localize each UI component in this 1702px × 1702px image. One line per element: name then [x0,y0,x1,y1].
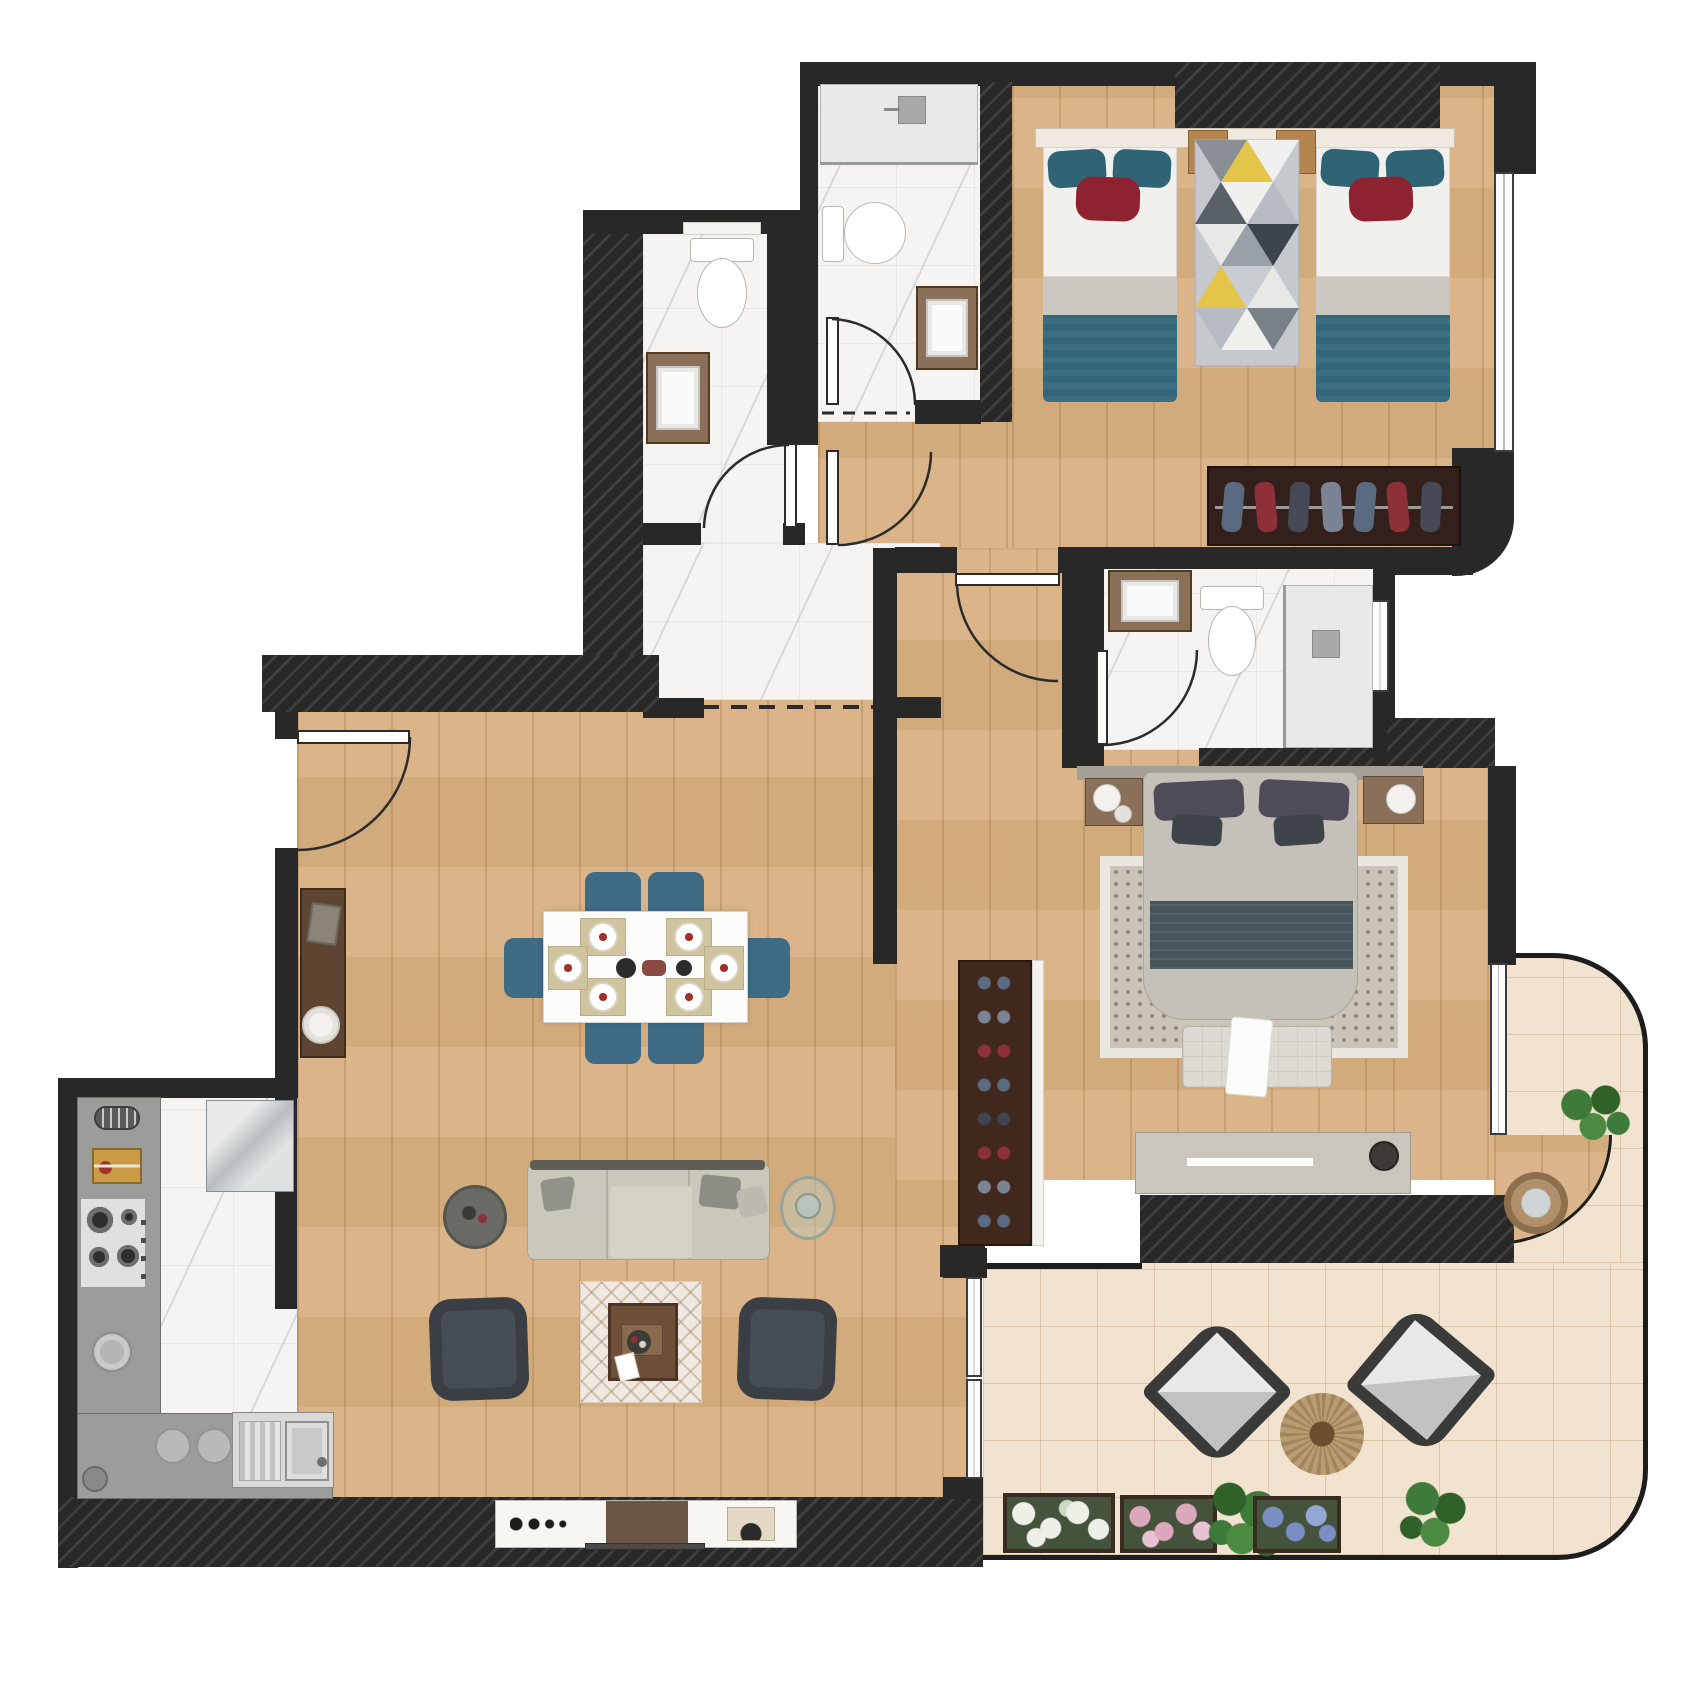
wall-guestbath-right [767,210,818,445]
wall-living-top [262,655,659,712]
glass-table-center [795,1193,821,1219]
hanging-garment [1221,481,1245,533]
master-dresser [1135,1132,1411,1194]
dining-chair-right [744,938,790,998]
wall-slidingdoor-bottom-stub [943,1477,983,1499]
headboard-cube-right [1276,130,1316,174]
decor-bar [1186,1157,1314,1167]
refrigerator [206,1100,294,1192]
wall-ensuite-bottom [1199,748,1389,768]
wall-top-right-block [1494,62,1536,174]
round-floor-plate [302,1006,340,1044]
cushion-small [1273,813,1325,846]
twin-bed-right [1316,137,1450,402]
bed-blanket-teal [1043,315,1177,402]
burner [89,1247,109,1267]
place-setting [548,946,588,990]
hanging-garment [1353,481,1377,533]
burner [121,1209,137,1225]
flower-box-white [1003,1493,1115,1553]
utensil-holder [94,1106,140,1130]
shoe-pair [972,976,1016,990]
flower-box-blue [1253,1496,1341,1553]
tv-console [495,1500,797,1548]
shower-glass-family [820,162,978,165]
decor-disc [1369,1141,1399,1171]
prep-bowl [92,1332,132,1372]
door-main-entry [297,730,410,744]
wall-guestbath-bottom [643,523,701,545]
bench-throw [1225,1016,1274,1097]
door-ensuite [1096,650,1108,745]
wall-entry-above-door [275,712,298,739]
kitchen-plate [196,1428,232,1464]
shoe-pair [972,1078,1016,1092]
sliding-door-panel-lower [966,1379,982,1479]
flower-box-pink [1120,1495,1217,1553]
tv-console-center [606,1501,688,1549]
door-master-bedroom [955,573,1060,586]
cushion-red [1348,176,1413,222]
small-plate [1114,805,1132,823]
tv-decor-picture [727,1507,775,1541]
sink-family-bathroom [916,286,978,370]
door-family-bathroom [826,317,839,405]
sink-basin [285,1421,329,1481]
armchair-right [736,1296,838,1401]
table-centerpiece [616,958,636,978]
wall-kitchen-left [58,1078,78,1568]
floor-kids-corridor [818,422,1012,548]
toilet-bowl-family [844,202,906,264]
wall-nook-right [1488,766,1516,965]
shelf-above-toilet [683,222,761,235]
hanging-garment [1254,481,1278,533]
door-kids-bedroom [826,450,839,545]
shoe-pair [972,1214,1016,1228]
wall-kids-rounded-corner [1452,448,1514,576]
nightstand-left [1085,778,1143,826]
phone-decor [306,902,341,946]
wall-west-thick [583,213,643,669]
side-table-decor [462,1206,476,1220]
gas-hob [80,1198,146,1288]
wall-living-master [873,548,897,964]
table-centerpiece [676,960,692,976]
hanging-garment [1420,482,1443,533]
coffee-table [608,1303,678,1381]
shower-ensuite [1283,585,1373,748]
sofa-back [530,1160,765,1170]
wall-familybath-bottom [915,400,981,424]
shower-glass-ensuite [1283,585,1286,748]
cushion-red [1075,176,1140,222]
master-bed [1143,772,1358,1020]
shower-head-family [898,96,926,124]
round-planter [1504,1172,1568,1234]
bed-runner [1150,901,1353,969]
jute-rug [1280,1393,1364,1475]
wall-entry-below-door [275,848,298,1098]
headboard-cube-left [1188,130,1228,174]
shower-arm-family [884,108,900,111]
sink-faucet [317,1457,327,1467]
sink-drainboard [239,1421,281,1481]
bed-band [1043,277,1177,315]
side-table-decor [478,1214,487,1223]
tv-screen [585,1543,705,1550]
dining-chair-bottom-2 [648,1018,704,1064]
cushion-small [1171,813,1223,846]
toilet-bowl-guest [697,258,747,328]
hanging-garment [1320,481,1343,532]
dining-table [543,911,748,1023]
window-kids-bedroom [1494,172,1514,452]
wall-top-shaft [1175,62,1440,135]
wall-master-door-left [895,547,957,573]
sliding-door-panel-upper [966,1277,982,1377]
burner [87,1207,113,1233]
kitchen-plate [155,1428,191,1464]
wall-kitchen-top [58,1078,298,1098]
sofa-pillow [698,1174,741,1210]
sofa-pillow [570,1182,605,1217]
coffee-decor [627,1330,651,1354]
kitchen-bin [82,1466,108,1492]
shoe-pair [972,1010,1016,1024]
bed-blanket-teal [1316,315,1450,402]
sofa-pillow [735,1185,768,1218]
armchair-left [428,1296,530,1401]
shoe-pair [972,1112,1016,1126]
toilet-bowl-ensuite [1208,606,1256,676]
wall-ensuite-top [1100,547,1395,569]
wall-familybath-bedroom [980,82,1012,422]
side-table-round [443,1185,507,1249]
floor-plan-canvas [0,0,1702,1702]
wall-terrace-top [1140,1195,1514,1263]
table-centerpiece [642,960,666,976]
wall-passage-stub [940,1245,985,1277]
burner [117,1245,139,1267]
sofa [527,1163,770,1260]
shoe-pair [972,1044,1016,1058]
bed-band [1316,277,1450,315]
door-guest-bathroom [784,443,797,528]
shoe-pair [972,1146,1016,1160]
shoe-cabinet [958,960,1032,1246]
terrace-railing [987,1263,1142,1269]
wardrobe-kids [1207,466,1461,546]
sink-guest-bathroom [646,352,710,444]
coffee-card [614,1352,640,1382]
place-setting [704,946,744,990]
dining-chair-bottom-1 [585,1018,641,1064]
hanging-garment [1287,481,1310,532]
shower-head-ensuite [1312,630,1340,658]
cutting-board [92,1148,142,1184]
hob-knobs [141,1209,146,1279]
kitchen-sink [232,1412,334,1488]
wall-nook-top [1387,718,1495,768]
window-ensuite [1371,600,1389,692]
toilet-tank-family [822,206,844,262]
nightstand-right [1363,776,1424,824]
twin-bed-left [1043,137,1177,402]
sink-ensuite [1108,570,1192,632]
tv-decor-marks [510,1515,570,1533]
shoe-pair [972,1180,1016,1194]
hanging-garment [1386,481,1410,533]
tray [1386,784,1416,814]
shoe-cabinet-side [1032,960,1044,1246]
window-master-nook [1490,963,1507,1135]
glass-table-round [780,1176,836,1240]
sofa-chaise [610,1186,692,1258]
